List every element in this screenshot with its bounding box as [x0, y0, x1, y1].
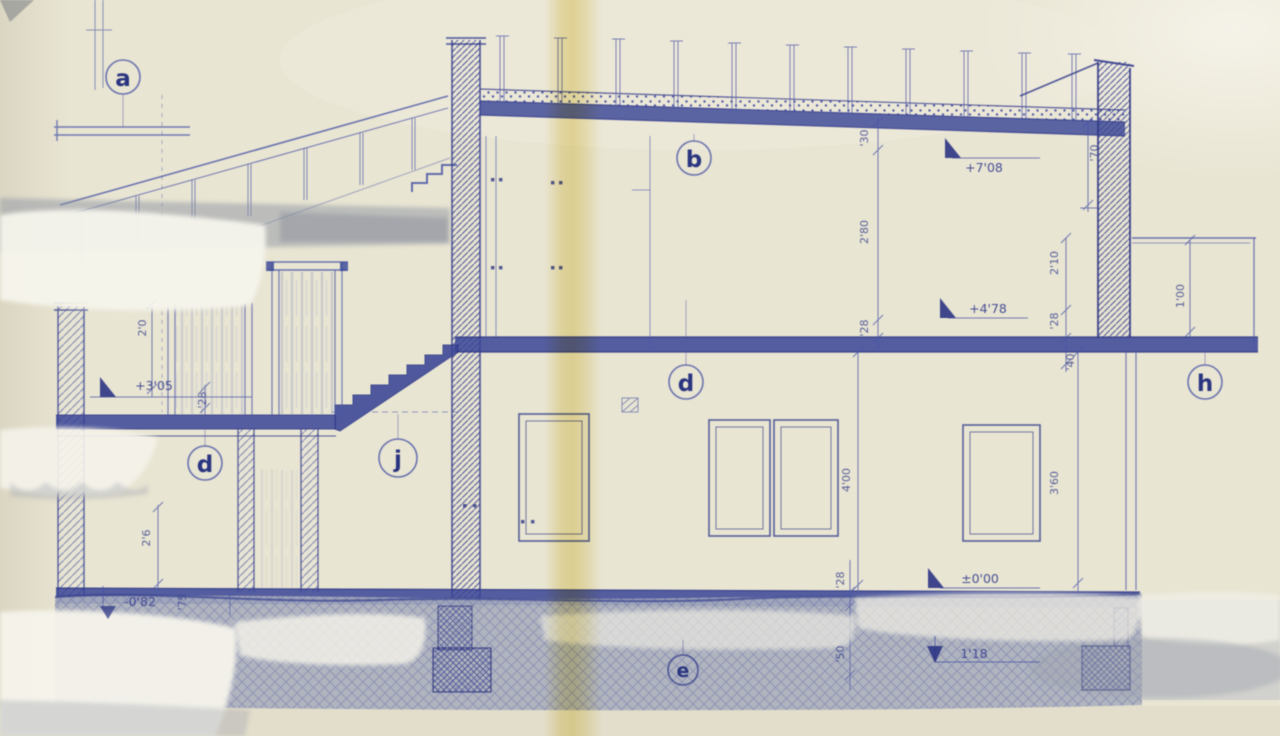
- level-upper-floor: +4'78: [969, 301, 1007, 316]
- svg-text:a: a: [115, 66, 131, 92]
- dim-terrace-slab: '28: [196, 391, 209, 408]
- level-roof: +7'08: [965, 160, 1003, 175]
- svg-text:±0'00: ±0'00: [961, 571, 999, 586]
- svg-text:-0'82: -0'82: [124, 594, 156, 609]
- dim-annex-beam: '40: [1064, 353, 1077, 370]
- svg-text:1'18: 1'18: [960, 646, 987, 661]
- svg-text:e: e: [677, 660, 690, 682]
- svg-text:d: d: [197, 452, 213, 478]
- svg-text:j: j: [393, 447, 402, 473]
- dim-footing-depth: '50: [834, 645, 847, 662]
- dim-terrace-parapet: 2'0: [136, 319, 149, 336]
- dim-roof-edge: '70: [1088, 144, 1101, 161]
- blueprint-scan: '30 2'80 '28 '70 2'10 '28 '40 1'00 4'00 …: [0, 0, 1280, 736]
- dim-ground-slab: '28: [834, 571, 847, 588]
- dim-room-left: 4'00: [840, 468, 853, 492]
- svg-text:d: d: [678, 371, 694, 397]
- dim-left-offset: '75: [176, 593, 189, 610]
- svg-text:b: b: [686, 147, 702, 173]
- building-section-drawing: '30 2'80 '28 '70 2'10 '28 '40 1'00 4'00 …: [0, 0, 1280, 736]
- dim-parapet: '30: [858, 129, 871, 146]
- stair-wall: [446, 38, 486, 608]
- svg-text:h: h: [1197, 371, 1213, 397]
- dim-room-right: 3'60: [1048, 471, 1061, 495]
- dim-upper-room: 2'80: [858, 220, 871, 244]
- paper-fold-band: [544, 0, 602, 736]
- dim-annex-slab: '28: [1048, 312, 1061, 329]
- dim-left-post: 2'6: [140, 529, 153, 546]
- dim-annex-clear: 2'10: [1048, 251, 1061, 275]
- dim-annex-depth: 1'00: [1174, 284, 1187, 308]
- dim-upper-slab: '28: [858, 319, 871, 336]
- level-terrace: +3'05: [135, 378, 173, 393]
